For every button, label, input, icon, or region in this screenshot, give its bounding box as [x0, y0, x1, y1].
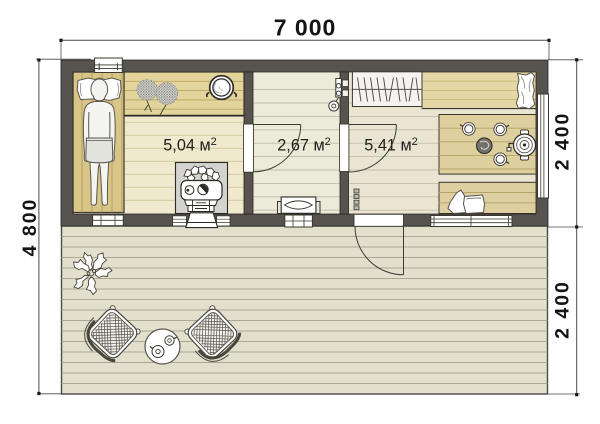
- svg-text:5,41 м2: 5,41 м2: [364, 136, 418, 155]
- svg-text:2,67 м2: 2,67 м2: [277, 136, 331, 155]
- svg-text:2 400: 2 400: [551, 112, 573, 171]
- svg-text:2 400: 2 400: [551, 280, 573, 339]
- svg-text:7 000: 7 000: [274, 15, 337, 41]
- svg-text:4 800: 4 800: [19, 198, 41, 257]
- svg-text:5,04 м2: 5,04 м2: [163, 136, 217, 155]
